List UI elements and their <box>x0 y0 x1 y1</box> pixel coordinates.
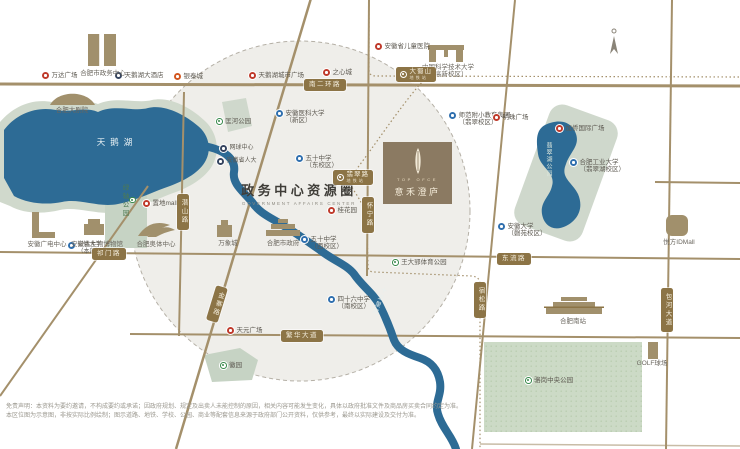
broadcasting-center-icon <box>32 212 55 238</box>
swan-lake-name: 天鹅湖 <box>97 136 138 148</box>
green-axis-park: 绿轴公园 <box>119 184 136 218</box>
disclaimer-line-1: 免责声明：本资料为要约邀请，不构成要约或承诺；因政府规划、规定及出卖人未能控制的… <box>6 403 606 412</box>
logo-zh: 意禾澄庐 <box>394 185 440 198</box>
red-marker-icon <box>143 200 150 207</box>
poi-label: 四十六中学（南校区） <box>338 296 371 310</box>
kuanghe-park[interactable]: 匡河公园 <box>216 118 251 125</box>
disclaimer: 免责声明：本资料为要约邀请，不构成要约或承诺；因政府规划、规定及出卖人未能控制的… <box>6 403 606 420</box>
poi-label: 天鹅湖大酒店 <box>125 72 164 79</box>
label-text: 明珠广场 <box>503 114 529 121</box>
poi-label: 五十中学（西校区） <box>311 236 344 250</box>
poi-label: 安徽医科大学（新区） <box>286 110 325 124</box>
poi-label: 加侨国际广场 <box>566 125 605 132</box>
label-text: 骆岗中央公园 <box>534 377 573 384</box>
label-text: （东校区） <box>306 162 339 169</box>
label-text: 天鹅湖城市广场 <box>259 72 305 79</box>
red-marker-icon <box>493 114 500 121</box>
station-sub: 地铁站 <box>347 179 370 183</box>
label-text: GOLF球场 <box>637 360 668 367</box>
zhidi-mall[interactable]: 置地mall <box>143 200 177 207</box>
label-text: （翡翠湖校区） <box>580 166 626 173</box>
park-marker-icon <box>129 197 136 204</box>
label-text: 徽园 <box>229 362 242 369</box>
poi-label: 安徽大学（磬苑校区） <box>508 223 547 237</box>
hefei-city-government: 合肥市政府 <box>267 240 300 247</box>
label-text: 桂花园 <box>338 207 358 214</box>
poi-label: 悦方IDMall <box>663 239 694 246</box>
luogang-central-park[interactable]: 骆岗中央公园 <box>525 377 573 384</box>
red-marker-icon <box>227 327 234 334</box>
label-text: 合肥市政务中心 <box>80 70 126 77</box>
hfut-feicui-campus[interactable]: 合肥工业大学（翡翠湖校区） <box>570 159 625 173</box>
station-sub: 地铁站 <box>410 76 433 80</box>
blue-marker-icon <box>498 223 505 230</box>
poi-label: 网球中心 <box>230 145 254 152</box>
poi-label: 合肥大剧院 <box>56 107 89 114</box>
hefei-olympic-center: 合肥奥体中心 <box>137 241 176 248</box>
label-text: 加侨国际广场 <box>566 125 605 132</box>
navy-marker-icon <box>220 145 227 152</box>
green-marker-icon <box>525 377 532 384</box>
poi-label: 万象城 <box>218 240 238 247</box>
label-text: 安徽医科大学 <box>286 110 325 117</box>
poi-label: 之心城 <box>333 69 353 76</box>
poi-label: 天鹅湖城市广场 <box>259 72 305 79</box>
wangdaying-sports-park[interactable]: 王大郢体育公园 <box>392 259 447 266</box>
anhui-broadcasting-center: 安徽广电中心 <box>28 241 67 248</box>
red-marker-icon <box>375 43 382 50</box>
road-huaining[interactable]: 怀宁路 <box>362 197 374 233</box>
yintai-city[interactable]: 银泰城 <box>174 73 203 80</box>
blue-marker-icon <box>296 155 303 162</box>
label-text: （磬苑校区） <box>508 230 547 237</box>
jade-lake-name: 翡翠湖公园 <box>544 142 553 177</box>
hefei-grand-theatre: 合肥大剧院 <box>56 107 89 114</box>
location-map: 天鹅湖 十五里河 翡翠湖公园 政务中心资源圈 GOVERNMENT AFFAIR… <box>0 0 740 449</box>
poi-label: 明珠广场 <box>503 114 529 121</box>
label-text: 五十中学 <box>306 155 339 162</box>
yuefang-idmall: 悦方IDMall <box>663 239 694 246</box>
mingzhu-plaza[interactable]: 明珠广场 <box>493 114 529 121</box>
golf-building-icon <box>648 342 658 359</box>
anhui-university-qingyuan[interactable]: 安徽大学（磬苑校区） <box>498 223 547 237</box>
road-south-2nd-ring-line <box>0 84 740 86</box>
poi-label: 合肥奥体中心 <box>137 241 176 248</box>
label-text: 王大郢体育公园 <box>401 259 447 266</box>
poi-label: 匡河公园 <box>225 118 251 125</box>
swan-lake-city-plaza[interactable]: 天鹅湖城市广场 <box>249 72 304 79</box>
metro-station-dashushan[interactable]: 大蜀山地铁站 <box>396 67 436 82</box>
government-center-towers-icon <box>88 34 116 66</box>
green-marker-icon <box>392 259 399 266</box>
label-text: 万象城 <box>218 240 238 247</box>
label-text: 合肥大剧院 <box>56 107 89 114</box>
golf-course: GOLF球场 <box>637 360 668 367</box>
label-text: 万达广场 <box>52 72 78 79</box>
label-text: （新区） <box>286 117 325 124</box>
blue-marker-icon <box>301 236 308 243</box>
poi-label: 安徽省人大 <box>227 158 257 165</box>
label-text: （南校区） <box>338 303 371 310</box>
blue-marker-icon <box>570 159 577 166</box>
tianyuan-plaza[interactable]: 天元广场 <box>227 327 263 334</box>
poi-label: 王大郢体育公园 <box>401 259 447 266</box>
label-text: 置地mall <box>153 200 178 207</box>
station-label: 翡翠路地铁站 <box>347 172 370 184</box>
label-text: 合肥工业大学 <box>580 159 626 166</box>
poi-label: 安徽广电中心 <box>28 241 67 248</box>
poi-label: 置地mall <box>153 200 178 207</box>
label-text: 安徽省人大 <box>227 158 257 165</box>
metro-ring-icon <box>400 71 407 78</box>
project-logo: TOP OFCE 意禾澄庐 <box>383 142 452 204</box>
poi-label: 万达广场 <box>52 72 78 79</box>
label-text: 合肥奥体中心 <box>137 241 176 248</box>
blue-marker-icon <box>449 112 456 119</box>
museum-icon <box>84 219 104 235</box>
road-qianshan[interactable]: 潜山路 <box>177 194 189 230</box>
label-text: 网球中心 <box>230 145 254 152</box>
zhixin-city[interactable]: 之心城 <box>323 69 352 76</box>
poi-label: 五十中学（东校区） <box>306 155 339 169</box>
compass-north-icon <box>606 28 622 61</box>
children-hospital[interactable]: 安徽省儿童医院 <box>375 43 430 50</box>
label-text: 合肥南站 <box>560 318 586 325</box>
poi-label: 合肥市政府 <box>267 240 300 247</box>
blue-marker-icon <box>328 296 335 303</box>
paleontology-museum: 安徽古生物博物馆 <box>71 241 123 248</box>
no46-middle-school[interactable]: 四十六中学（南校区） <box>328 296 370 310</box>
red-marker-icon <box>249 72 256 79</box>
poi-label: 安徽古生物博物馆 <box>71 241 123 248</box>
mixc-mall: 万象城 <box>218 240 238 247</box>
guihuayuan[interactable]: 桂花园 <box>328 207 357 214</box>
label-text: 安徽广电中心 <box>28 241 67 248</box>
poi-label: 骆岗中央公园 <box>534 377 573 384</box>
station-label: 大蜀山地铁站 <box>410 69 433 81</box>
blue-marker-icon <box>276 110 283 117</box>
poi-label: 合肥南站 <box>560 318 586 325</box>
label-text: 安徽古生物博物馆 <box>71 241 123 248</box>
park-name-text: 绿轴公园 <box>119 184 129 218</box>
road-qimen[interactable]: 祁门路 <box>92 248 126 260</box>
label-text: 四十六中学 <box>338 296 371 303</box>
jiaqiao-international-plaza[interactable]: 加侨国际广场 <box>556 125 605 132</box>
disclaimer-line-2: 本区位图为示意图，非按实际比例绘制；图示道路、地铁、学校、公园、商业等配套信息来… <box>6 412 606 421</box>
logo-en: TOP OFCE <box>397 177 438 182</box>
label-text: 天元广场 <box>237 327 263 334</box>
no50-middle-school-east[interactable]: 五十中学（东校区） <box>296 155 338 169</box>
label-text: 银泰城 <box>184 73 204 80</box>
no50-middle-school-west[interactable]: 五十中学（西校区） <box>301 236 343 250</box>
poi-label: 桂花园 <box>338 207 358 214</box>
road-susong[interactable]: 宿松路 <box>474 282 486 318</box>
provincial-peoples-congress[interactable]: 安徽省人大 <box>217 158 257 165</box>
label-text: 安徽大学 <box>508 223 547 230</box>
hefei-government-center: 合肥市政务中心 <box>80 70 126 77</box>
yuefang-building-icon <box>666 215 688 236</box>
poi-label: 合肥工业大学（翡翠湖校区） <box>580 159 626 173</box>
ustc-gate-icon <box>428 45 464 62</box>
poi-label: 合肥市政务中心 <box>80 70 126 77</box>
poi-label: GOLF球场 <box>637 360 668 367</box>
label-text: （西校区） <box>311 243 344 250</box>
green-marker-icon <box>216 118 223 125</box>
label-text: 天鹅湖大酒店 <box>125 72 164 79</box>
red-marker-icon <box>323 69 330 76</box>
hui-garden[interactable]: 徽园 <box>220 362 242 369</box>
road-south-2nd-ring[interactable]: 南二环路 <box>304 79 346 91</box>
grand-theatre-icon <box>50 94 95 105</box>
label-text: 安徽省儿童医院 <box>385 43 431 50</box>
road-baohe-avenue[interactable]: 包河大道 <box>661 288 673 332</box>
label-text: 之心城 <box>333 69 353 76</box>
label-text: 五十中学 <box>311 236 344 243</box>
logo-leaf-emblem <box>410 148 426 174</box>
orange-marker-icon <box>174 73 181 80</box>
wanda-plaza[interactable]: 万达广场 <box>42 72 78 79</box>
red-marker-icon <box>42 72 49 79</box>
navy-marker-icon <box>217 158 224 165</box>
poi-label: 银泰城 <box>184 73 204 80</box>
circle-title-en: GOVERNMENT AFFAIRS CENTER <box>241 201 357 206</box>
anhui-medical-university[interactable]: 安徽医科大学（新区） <box>276 110 325 124</box>
poi-label: 安徽省儿童医院 <box>385 43 431 50</box>
tennis-center[interactable]: 网球中心 <box>220 145 254 152</box>
red-marker-icon <box>556 125 563 132</box>
hefei-south-station: 合肥南站 <box>560 318 586 325</box>
poi-label: 徽园 <box>229 362 242 369</box>
south-station-icon <box>544 297 604 314</box>
green-marker-icon <box>220 362 227 369</box>
road-dongliu[interactable]: 东流路 <box>497 253 531 265</box>
metro-ring-icon <box>337 174 344 181</box>
label-text: 悦方IDMall <box>663 239 694 246</box>
poi-label: 天元广场 <box>237 327 263 334</box>
metro-station-feicuilu[interactable]: 翡翠路地铁站 <box>333 170 373 185</box>
label-text: 匡河公园 <box>225 118 251 125</box>
label-text: 合肥市政府 <box>267 240 300 247</box>
red-marker-icon <box>328 207 335 214</box>
road-fanhua-avenue[interactable]: 繁华大道 <box>281 330 323 342</box>
